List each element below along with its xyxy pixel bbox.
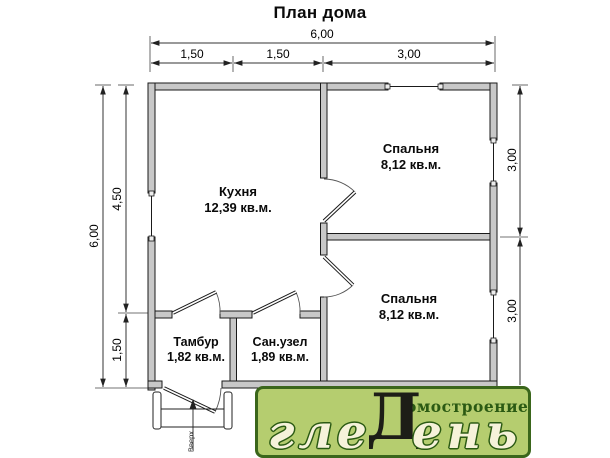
room-name: Спальня (336, 141, 486, 157)
room-name: Кухня (163, 184, 313, 200)
dim-left-seg1: 4,50 (110, 174, 124, 224)
company-logo: омостроение гле Д ень (255, 386, 531, 458)
page-title: План дома (220, 3, 420, 23)
room-area: 1,89 кв.м. (230, 350, 330, 365)
dim-right-seg1: 3,00 (505, 135, 519, 185)
door-bathroom (253, 292, 300, 314)
room-label-bedroom2: Спальня 8,12 кв.м. (334, 291, 484, 323)
room-label-bathroom: Сан.узел 1,89 кв.м. (230, 335, 330, 365)
dim-top-seg3: 3,00 (384, 47, 434, 61)
door-tambour (173, 292, 220, 314)
room-name: Спальня (334, 291, 484, 307)
logo-brand-part2: ень (412, 409, 522, 456)
door-bedroom1 (324, 179, 355, 221)
dim-left-total: 6,00 (87, 211, 101, 261)
window-left (149, 191, 154, 241)
stairs-direction-label: Вверх (187, 422, 196, 458)
window-right-bedroom2 (491, 290, 496, 343)
room-area: 8,12 кв.м. (336, 157, 486, 173)
dim-left-seg2: 1,50 (110, 325, 124, 375)
dim-right-seg2: 3,00 (505, 286, 519, 336)
room-label-kitchen: Кухня 12,39 кв.м. (163, 184, 313, 216)
window-right-bedroom1 (491, 138, 496, 186)
dim-top-seg1: 1,50 (167, 47, 217, 61)
room-area: 8,12 кв.м. (334, 307, 484, 323)
logo-brand-part1: гле (268, 409, 371, 456)
room-name: Сан.узел (230, 335, 330, 350)
window-top (385, 84, 443, 89)
floor-plan-page: План дома 6,00 1,50 1,50 3,00 6,00 4,50 … (0, 0, 610, 458)
room-area: 12,39 кв.м. (163, 200, 313, 216)
dim-top-seg2: 1,50 (253, 47, 303, 61)
dim-top-total: 6,00 (297, 27, 347, 41)
room-label-bedroom1: Спальня 8,12 кв.м. (336, 141, 486, 173)
